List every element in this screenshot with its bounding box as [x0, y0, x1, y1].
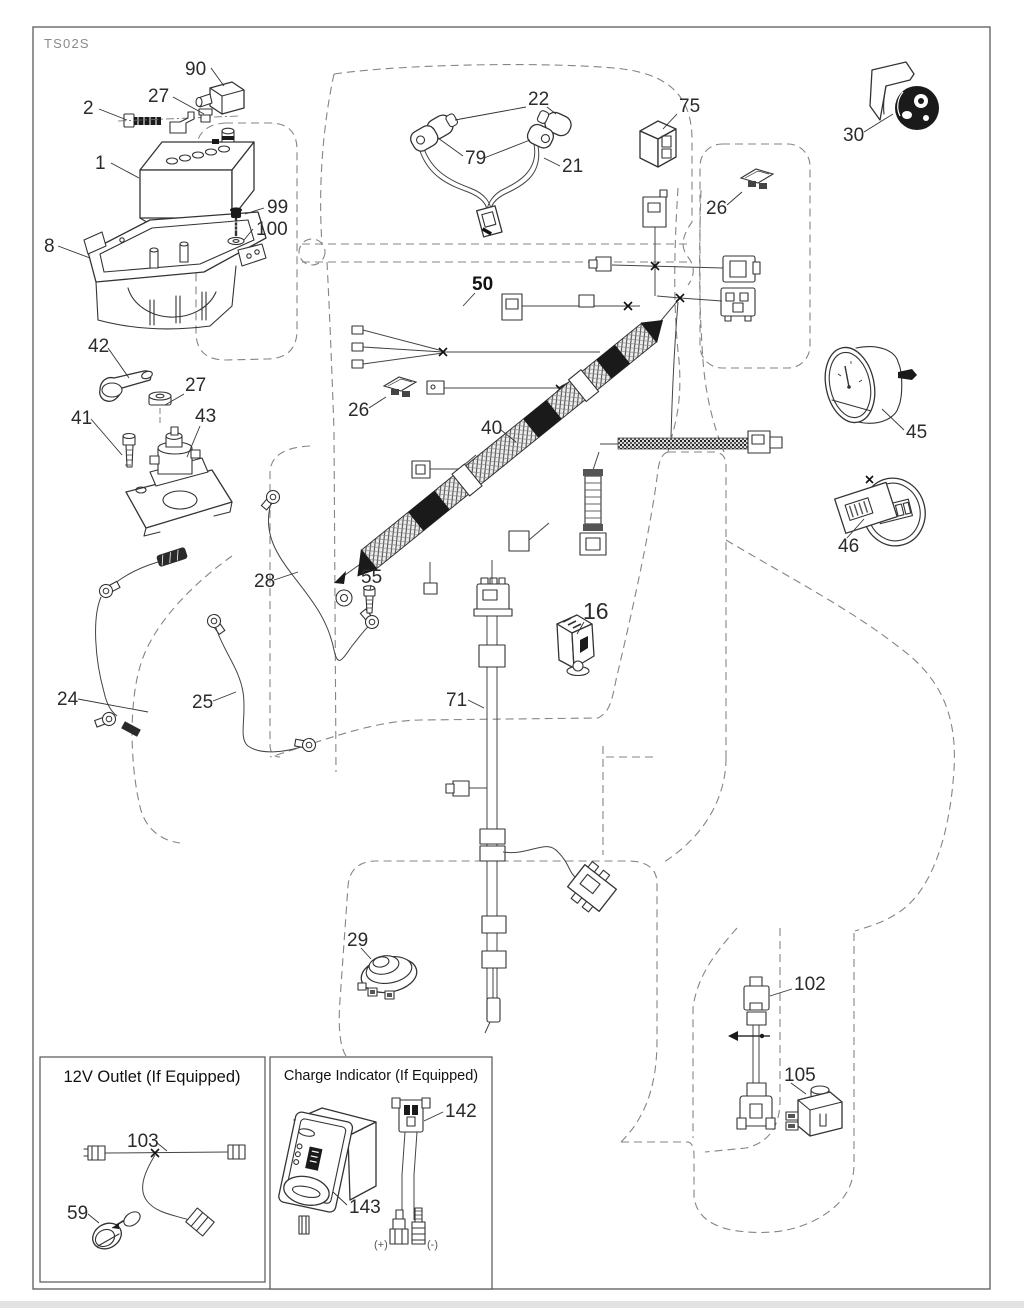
callout-28: 28: [254, 571, 275, 592]
braided-cable: [600, 431, 782, 453]
plus-terminal-label: (+): [374, 1239, 388, 1251]
callout-1: 1: [95, 153, 106, 174]
callout-8: 8: [44, 236, 55, 257]
callout-29: 29: [347, 930, 368, 951]
callout-42: 42: [88, 336, 109, 357]
callout-142: 142: [445, 1101, 477, 1122]
callout-59: 59: [67, 1203, 88, 1224]
callout-71: 71: [446, 690, 467, 711]
ground-cable-25: [205, 612, 317, 753]
inset-charge-indicator: Charge Indicator (If Equipped): [270, 1057, 492, 1289]
callout-103: 103: [127, 1131, 159, 1152]
callout-16: 16: [583, 598, 609, 624]
callout-45: 45: [906, 422, 927, 443]
callout-22: 22: [528, 89, 549, 110]
relay: [640, 121, 676, 167]
outlet-inset-title: 12V Outlet (If Equipped): [63, 1068, 240, 1086]
solenoid-bolt: [123, 434, 135, 468]
ignition-switch: [870, 62, 939, 130]
scan-edge-artifact: [0, 1301, 1024, 1308]
callout-27a: 27: [148, 86, 169, 107]
callout-26a: 26: [348, 400, 369, 421]
tray-washer: [228, 237, 244, 244]
callout-40: 40: [481, 418, 502, 439]
callout-25: 25: [192, 692, 213, 713]
callout-41: 41: [71, 408, 92, 429]
callout-27b: 27: [185, 375, 206, 396]
callout-21: 21: [562, 156, 583, 177]
inset-12v-outlet: 12V Outlet (If Equipped): [40, 1057, 265, 1282]
callout-99: 99: [267, 197, 288, 218]
jumper-harness: [728, 977, 775, 1129]
ribbed-conduit: [580, 452, 606, 555]
minus-terminal-label: (-): [427, 1239, 438, 1251]
horn: [358, 953, 420, 999]
starter-solenoid: [126, 408, 232, 536]
interlock-switch: [557, 615, 594, 676]
callout-105: 105: [784, 1065, 816, 1086]
callout-100: 100: [256, 219, 288, 240]
switch-105: [786, 1086, 842, 1136]
headlight-harness: [408, 106, 574, 237]
callout-43: 43: [195, 406, 216, 427]
callout-102: 102: [794, 974, 826, 995]
parts-diagram-page: TS02S: [0, 0, 1024, 1316]
charge-inset-title: Charge Indicator (If Equipped): [284, 1068, 478, 1084]
fuse-right: [741, 169, 773, 189]
headlight-connector: [477, 206, 502, 237]
callout-50: 50: [472, 274, 493, 295]
battery-cable: [94, 547, 188, 737]
callout-55: 55: [361, 567, 382, 588]
diagram-code: TS02S: [44, 36, 90, 51]
callout-26b: 26: [706, 198, 727, 219]
fuse-left: [384, 377, 416, 397]
callout-75: 75: [679, 96, 700, 117]
ammeter-gauge: [819, 343, 917, 427]
battery-tray: [84, 212, 266, 329]
dash-harness-connector: [563, 859, 620, 917]
callout-30: 30: [843, 125, 864, 146]
battery-clamp: [170, 109, 212, 133]
callout-46: 46: [838, 536, 859, 557]
callout-2: 2: [83, 98, 94, 119]
callout-90: 90: [185, 59, 206, 80]
callout-24: 24: [57, 689, 79, 710]
callout-143: 143: [349, 1197, 381, 1218]
callout-79: 79: [465, 148, 486, 169]
diagram-canvas: TS02S: [0, 0, 1024, 1316]
dash-harness: [446, 560, 621, 1033]
